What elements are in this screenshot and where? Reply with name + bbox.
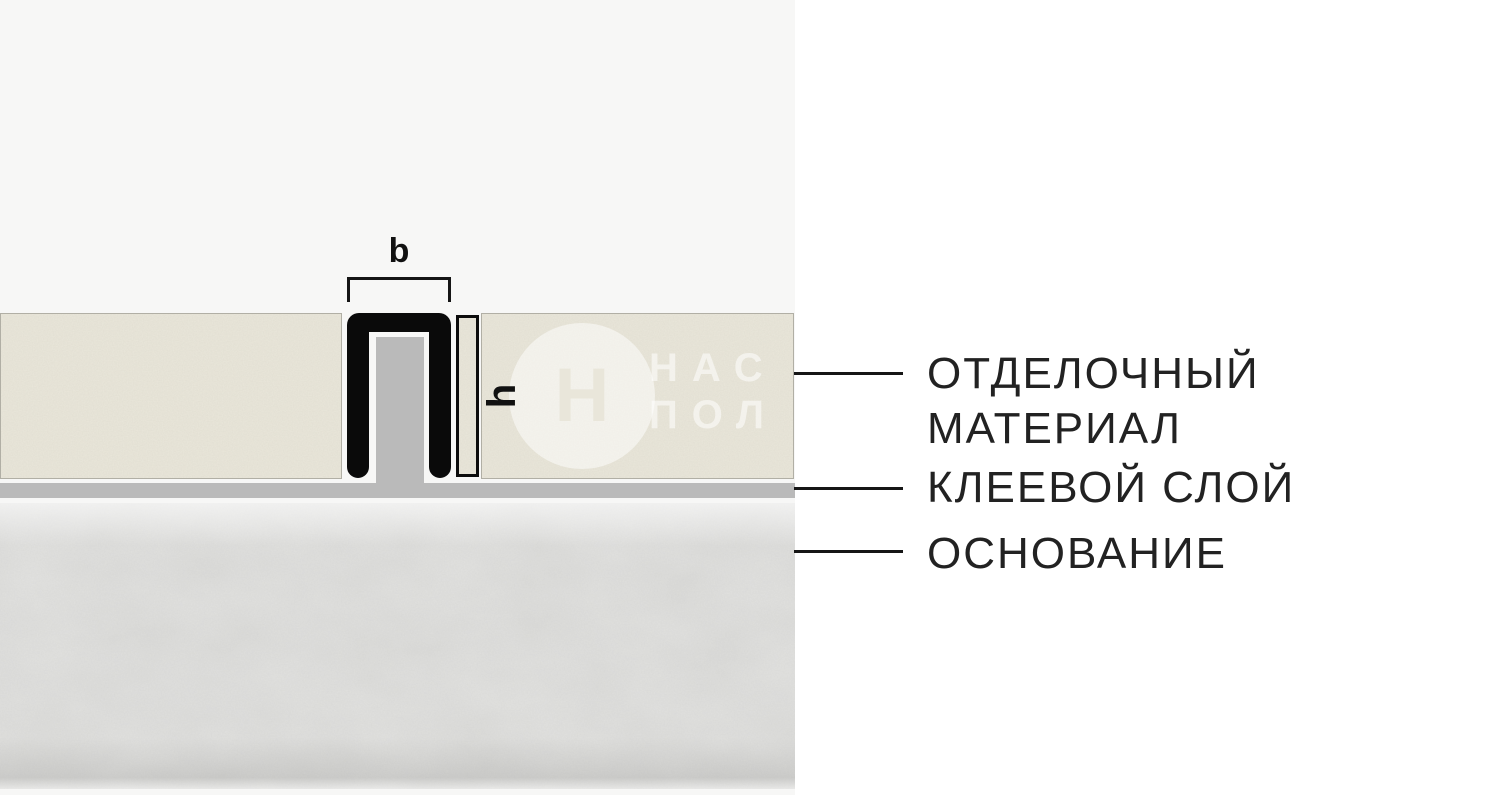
profile-left-leg bbox=[347, 327, 369, 478]
watermark-logo-letter: Н bbox=[555, 358, 610, 434]
paper-texture bbox=[459, 318, 476, 474]
joint-filler-column bbox=[376, 337, 424, 498]
label-line: ОТДЕЛОЧНЫЙ bbox=[927, 346, 1260, 401]
label-line: КЛЕЕВОЙ СЛОЙ bbox=[927, 460, 1295, 515]
paper-texture bbox=[1, 314, 341, 478]
width-dimension-label: b bbox=[347, 234, 451, 268]
watermark-logo-circle: Н bbox=[509, 323, 655, 469]
height-dimension-label: h bbox=[480, 374, 524, 418]
finishing-material-right-panel: Н НАС ПОЛ bbox=[481, 313, 794, 479]
label-line: ОСНОВАНИЕ bbox=[927, 526, 1227, 581]
leader-line-substrate bbox=[794, 550, 903, 553]
leader-line-adhesive-layer bbox=[794, 487, 903, 490]
label-line: МАТЕРИАЛ bbox=[927, 401, 1260, 456]
watermark-text: НАС ПОЛ bbox=[649, 345, 778, 439]
finishing-material-left-panel bbox=[0, 313, 342, 479]
height-dimension-marker bbox=[456, 315, 479, 477]
concrete-shading bbox=[0, 503, 795, 789]
profile-right-leg bbox=[429, 327, 451, 478]
watermark-text-line: НАС bbox=[649, 345, 778, 392]
label-adhesive-layer: КЛЕЕВОЙ СЛОЙ bbox=[927, 460, 1295, 515]
cross-section-diagram: Н НАС ПОЛ b h bbox=[0, 0, 795, 795]
width-dimension-bracket bbox=[347, 277, 451, 302]
substrate-area bbox=[0, 503, 795, 789]
watermark-text-line: ПОЛ bbox=[649, 392, 778, 439]
leader-line-finishing-material bbox=[794, 372, 903, 375]
diagram-canvas: Н НАС ПОЛ b h bbox=[0, 0, 1500, 795]
label-substrate: ОСНОВАНИЕ bbox=[927, 526, 1227, 581]
label-finishing-material: ОТДЕЛОЧНЫЙ МАТЕРИАЛ bbox=[927, 346, 1260, 456]
